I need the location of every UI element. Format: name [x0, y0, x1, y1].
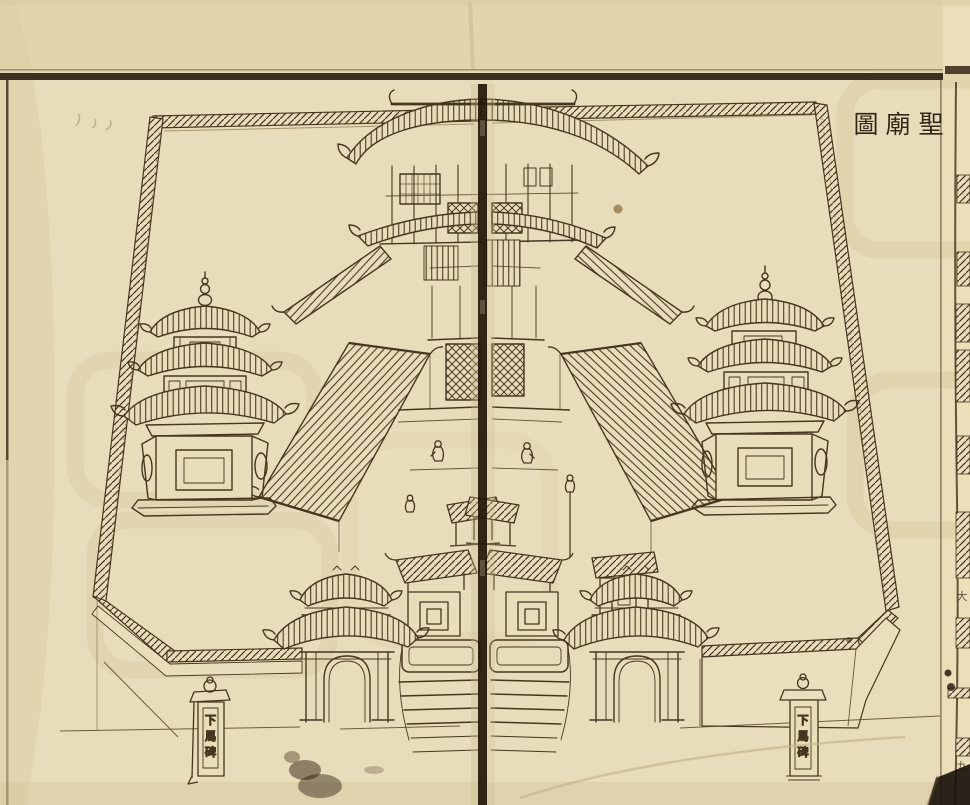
stele-label-char: 碑: [205, 746, 217, 759]
stele-label-char: 下: [205, 715, 217, 727]
top-rule-thin: [0, 69, 943, 71]
top-rule-band: [0, 73, 943, 80]
stele-label-char: 馬: [205, 730, 217, 743]
stele-label-char: 下: [797, 715, 809, 727]
left-frame-line: [6, 80, 9, 460]
map-title: 聖 廟 圖: [853, 111, 943, 139]
book-scan: 大 九: [0, 0, 970, 805]
adjacent-page-char: 大: [957, 589, 968, 603]
temple-map-illustration: 大 九: [0, 0, 970, 805]
title-char: 廟: [885, 111, 910, 139]
title-char: 聖: [918, 112, 943, 139]
right-page-edge: [940, 80, 942, 805]
stele-label-char: 碑: [797, 746, 809, 759]
center-fold: [471, 84, 495, 805]
stele-label-char: 馬: [797, 730, 809, 743]
title-char: 圖: [853, 112, 878, 139]
